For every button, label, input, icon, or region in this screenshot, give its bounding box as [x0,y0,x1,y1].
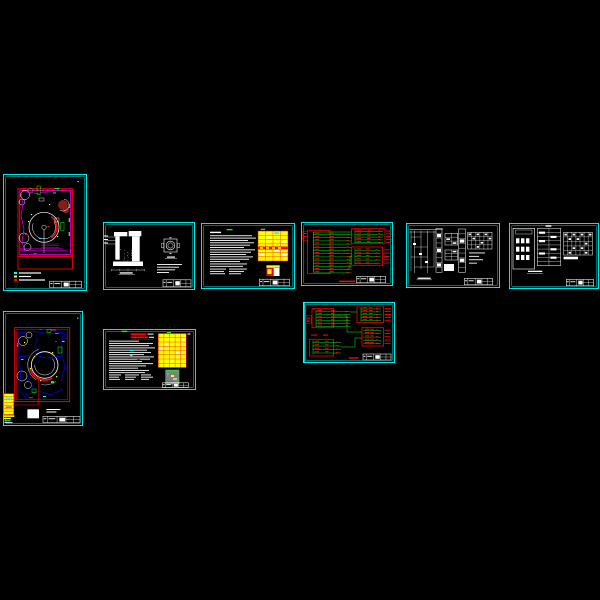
sheet-pole-detail-table-content [409,228,492,284]
sheet-site-plan-power[interactable] [3,174,87,291]
sheet-notes-schedule-2-content [109,331,191,388]
sheet-notes-schedule-1-content [210,229,289,286]
sheet-system-diagram-2-content [304,303,391,363]
sheet-panel-elevation-schedule[interactable] [509,223,599,289]
sheet-site-plan-lighting-content [4,318,80,424]
sheet-site-plan-power-content [14,181,81,288]
sheet-pole-detail-table[interactable] [406,223,500,288]
sheet-detail-foundation-content [104,231,191,287]
sheet-system-diagram-1-content [303,229,392,283]
sheet-system-diagram-2[interactable] [303,302,395,363]
cad-model-space [0,0,600,600]
sheet-notes-schedule-1[interactable] [201,223,295,289]
sheet-detail-foundation[interactable] [103,222,195,290]
sheet-site-plan-lighting[interactable] [3,311,83,426]
sheet-panel-elevation-schedule-content [513,225,594,286]
sheet-notes-schedule-2[interactable] [103,329,196,390]
sheet-system-diagram-1[interactable] [301,222,393,286]
